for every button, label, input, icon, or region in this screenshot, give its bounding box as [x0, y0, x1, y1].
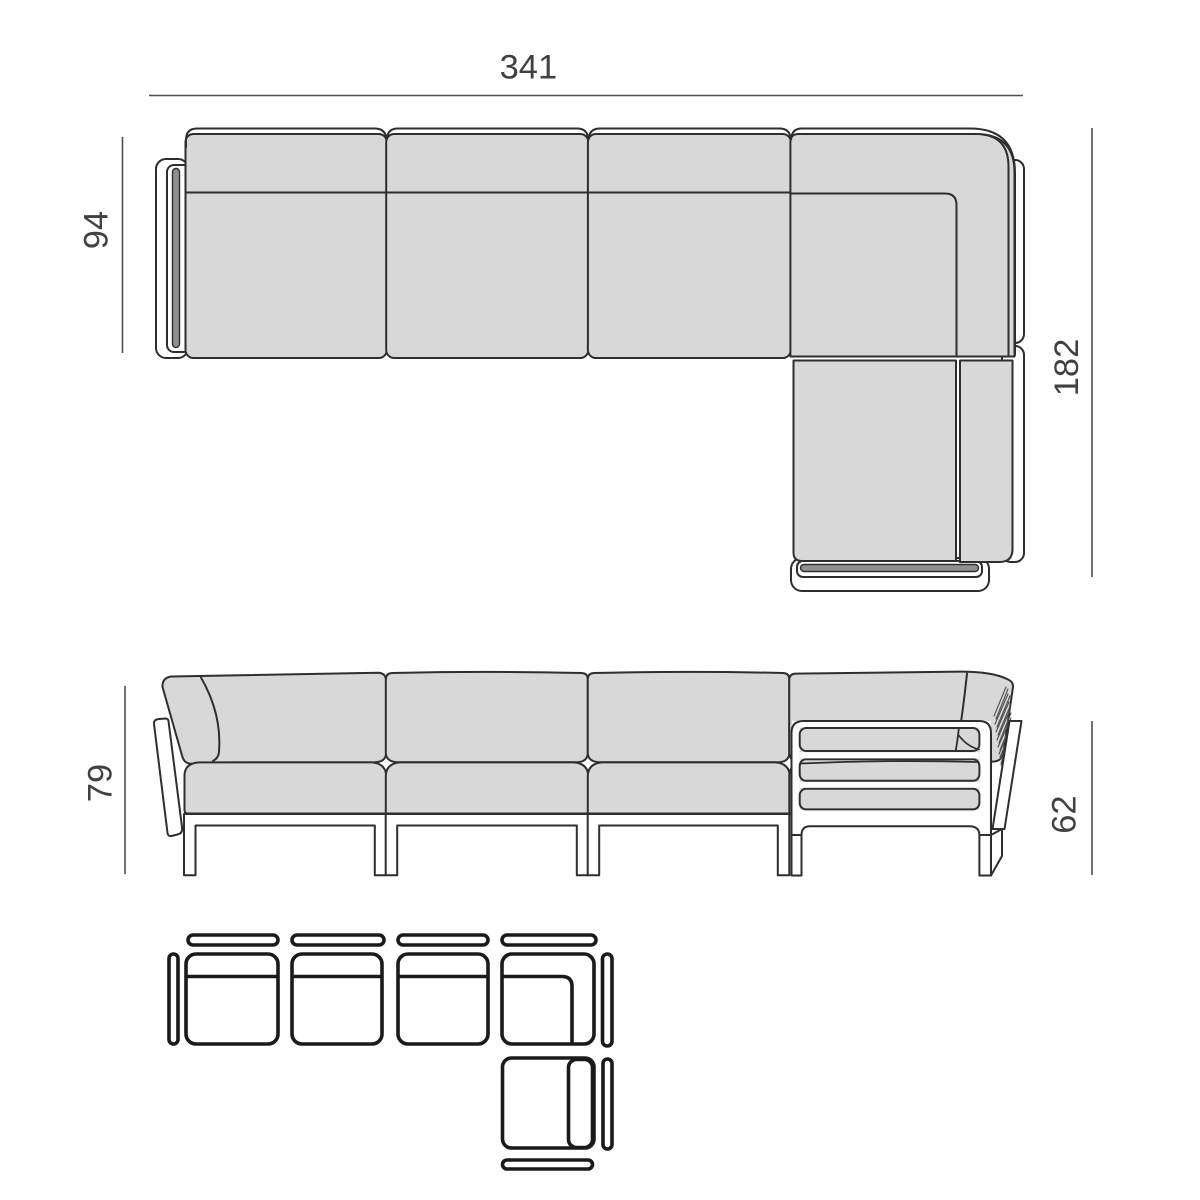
svg-text:182: 182: [1048, 339, 1086, 397]
svg-text:79: 79: [82, 764, 120, 802]
svg-text:94: 94: [77, 211, 115, 249]
svg-text:62: 62: [1046, 795, 1084, 833]
svg-text:341: 341: [500, 48, 558, 86]
